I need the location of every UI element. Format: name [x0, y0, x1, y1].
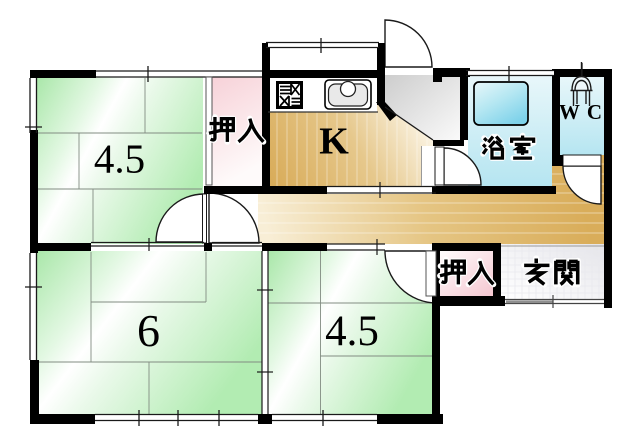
svg-text:K: K [319, 121, 349, 163]
svg-text:6: 6 [137, 305, 160, 356]
svg-text:WC: WC [559, 100, 609, 124]
svg-text:4.5: 4.5 [325, 308, 379, 355]
svg-text:4.5: 4.5 [94, 136, 145, 182]
